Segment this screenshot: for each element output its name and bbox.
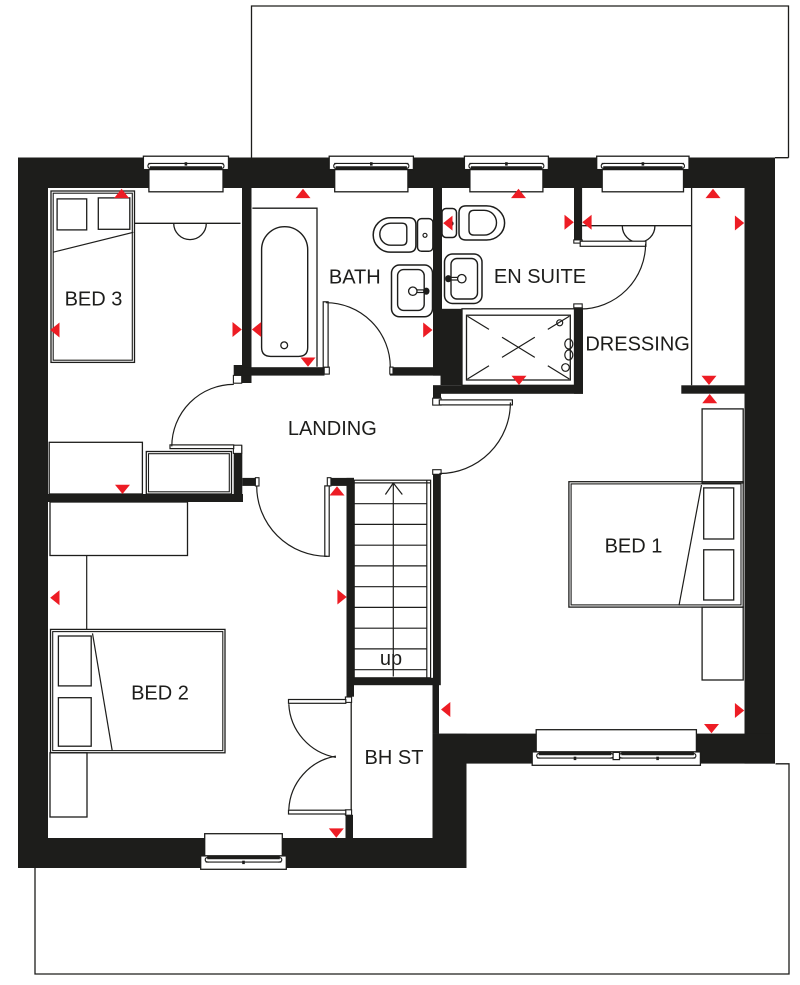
- svg-text:LANDING: LANDING: [288, 418, 377, 440]
- svg-text:BED 3: BED 3: [65, 289, 123, 311]
- svg-text:BATH: BATH: [329, 266, 381, 288]
- svg-text:EN SUITE: EN SUITE: [494, 266, 586, 288]
- svg-text:BH ST: BH ST: [365, 747, 424, 769]
- svg-text:DRESSING: DRESSING: [585, 334, 689, 356]
- svg-text:BED 1: BED 1: [605, 536, 663, 558]
- svg-text:up: up: [380, 648, 402, 670]
- svg-text:BED 2: BED 2: [131, 683, 189, 705]
